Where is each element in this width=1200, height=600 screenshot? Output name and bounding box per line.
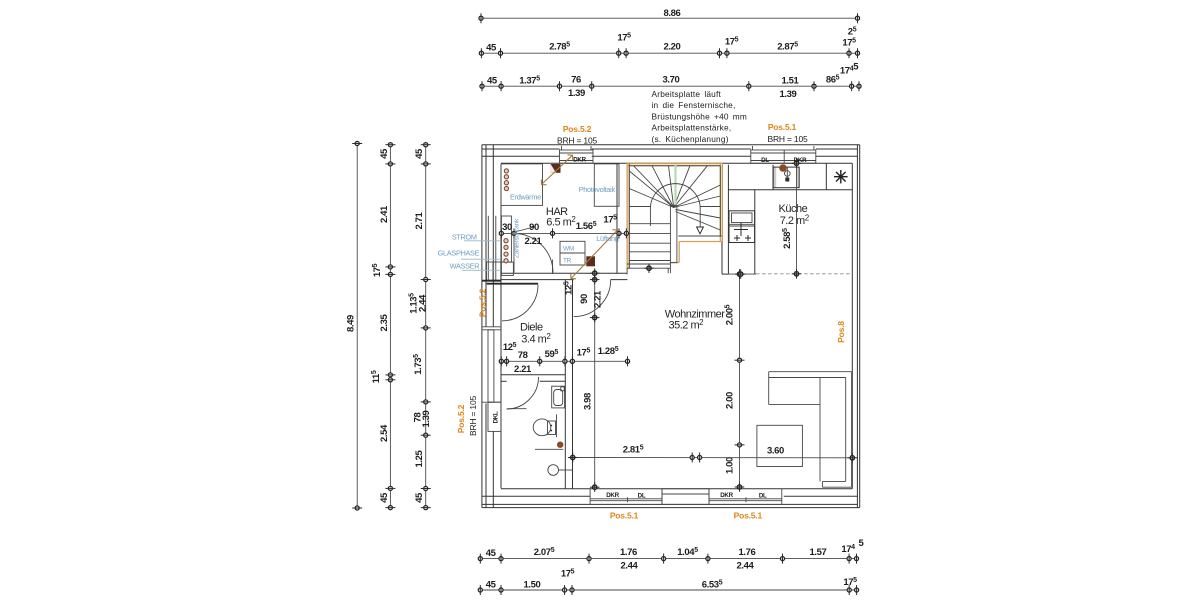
svg-text:WM: WM [563,246,574,253]
svg-text:Pos.5.1: Pos.5.1 [734,511,763,521]
svg-text:GLASPHASE: GLASPHASE [438,249,480,258]
svg-text:Pos.5.2: Pos.5.2 [478,288,488,317]
svg-text:DKR: DKR [573,157,586,164]
svg-text:76: 76 [571,75,581,86]
svg-text:Erdwärme: Erdwärme [510,193,541,202]
svg-text:DKR: DKR [794,157,807,164]
svg-text:DL: DL [638,493,646,500]
svg-text:2.20: 2.20 [664,42,681,53]
svg-text:1.39: 1.39 [421,410,432,427]
svg-text:TR: TR [563,258,572,265]
svg-text:BRH = 105: BRH = 105 [767,134,807,144]
svg-text:1.39: 1.39 [568,88,585,99]
svg-text:2.21: 2.21 [514,364,532,375]
svg-text:90: 90 [579,294,590,304]
svg-text:DL: DL [759,493,767,500]
svg-text:Pos.5.2: Pos.5.2 [563,124,592,134]
svg-text:45: 45 [414,148,425,159]
svg-text:DKL: DKL [493,411,500,423]
svg-text:1.76: 1.76 [620,547,637,558]
svg-text:Zählerschrank: Zählerschrank [514,218,521,258]
svg-text:90: 90 [529,222,539,233]
svg-text:(s. Küchenplanung): (s. Küchenplanung) [652,134,729,144]
svg-text:45: 45 [486,43,497,54]
svg-text:Pos.5.2: Pos.5.2 [456,404,466,433]
svg-text:45: 45 [379,148,390,159]
svg-text:45: 45 [414,492,425,503]
svg-text:2.44: 2.44 [737,561,755,572]
svg-text:2.00: 2.00 [725,392,736,409]
svg-text:1.50: 1.50 [524,580,541,591]
svg-text:DKR: DKR [720,492,733,499]
svg-text:2.21: 2.21 [525,236,543,247]
svg-text:DL: DL [761,157,769,164]
svg-text:3.60: 3.60 [767,446,784,457]
svg-text:Brüstungshöhe +40 mm: Brüstungshöhe +40 mm [652,111,748,121]
svg-text:Lüftung: Lüftung [596,234,618,243]
svg-text:1.57: 1.57 [810,547,827,558]
svg-text:Arbeitsplatte läuft: Arbeitsplatte läuft [652,89,722,99]
svg-text:Küche: Küche [779,203,808,215]
svg-text:45: 45 [487,76,498,87]
svg-text:STROM: STROM [452,233,477,242]
svg-text:2.44: 2.44 [621,561,639,572]
svg-text:2.71: 2.71 [414,211,425,229]
svg-text:1.39: 1.39 [780,89,797,100]
svg-text:45: 45 [486,548,497,559]
svg-text:78: 78 [518,350,528,361]
svg-text:1.00: 1.00 [725,457,736,474]
svg-text:Pos.8: Pos.8 [836,321,846,343]
svg-text:8.49: 8.49 [346,315,357,332]
svg-text:in die Fensternische,: in die Fensternische, [652,100,736,110]
svg-text:BRH = 105: BRH = 105 [557,136,597,146]
svg-text:Pos.5.1: Pos.5.1 [610,511,639,521]
svg-text:2.35: 2.35 [379,313,390,331]
svg-text:1.51: 1.51 [782,76,800,87]
svg-text:DKR: DKR [606,492,619,499]
svg-text:1.76: 1.76 [739,547,756,558]
svg-text:30: 30 [502,222,512,233]
svg-text:8.86: 8.86 [664,8,681,19]
svg-text:BRH = 105: BRH = 105 [468,396,478,436]
svg-text:Arbeitsplattenstärke,: Arbeitsplattenstärke, [652,123,732,133]
svg-text:2.44: 2.44 [418,294,429,312]
svg-text:2.41: 2.41 [379,205,390,223]
svg-text:2.21: 2.21 [593,290,604,308]
svg-text:1.25: 1.25 [414,449,425,467]
svg-text:Photovoltaik: Photovoltaik [579,185,616,194]
svg-text:3.70: 3.70 [663,75,680,86]
svg-text:2.54: 2.54 [379,424,390,442]
svg-text:WASSER: WASSER [450,261,480,270]
svg-text:35.2 m2: 35.2 m2 [669,318,705,332]
svg-text:45: 45 [486,580,497,591]
svg-text:Diele: Diele [520,322,543,334]
svg-text:3.98: 3.98 [582,393,593,410]
svg-text:45: 45 [379,492,390,503]
svg-text:Pos.5.1: Pos.5.1 [768,122,797,132]
